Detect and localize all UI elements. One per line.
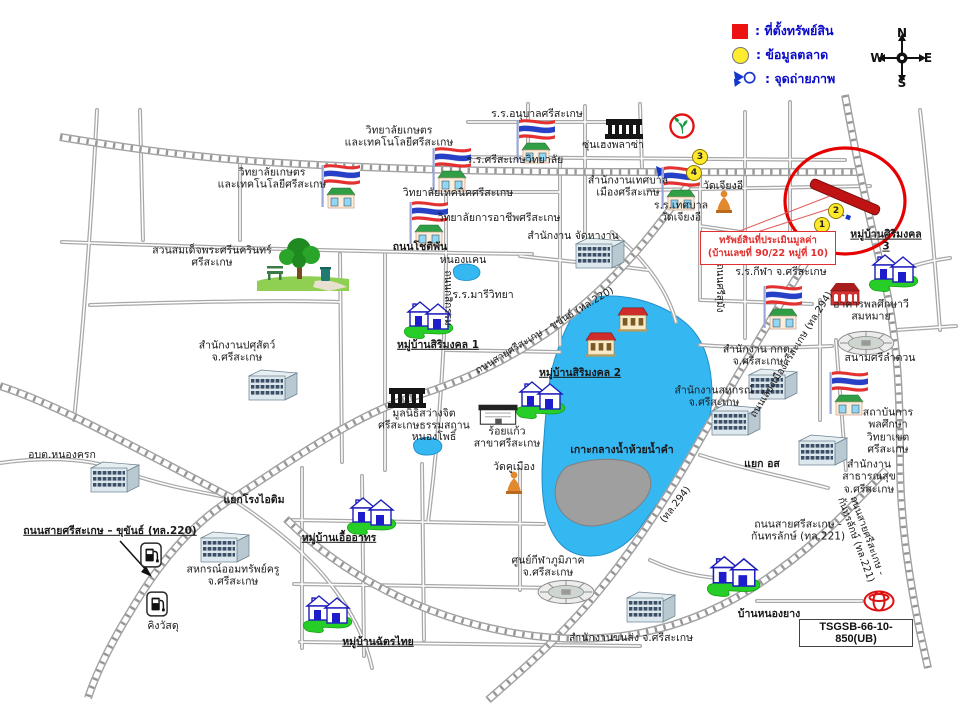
poi-layer: วิทยาลัยเกษตร และเทคโนโลยีศรีสะเกษวิทยาล… (0, 0, 960, 720)
nong-pho-label: หนองโพธิ์ (412, 431, 457, 443)
park-label-text: สวนสมเด็จพระศรีนครินทร์ ศรีสะเกษ (152, 245, 271, 269)
photo-point-icon (732, 70, 758, 89)
king-watsadu-label: คิงวัสดุ (147, 620, 178, 632)
reference-code-box: TSGSB-66-10-850(UB) (799, 619, 913, 647)
chiang-ee-temple-label-text: วัดเจียงอี (703, 180, 743, 192)
transport-office-building (623, 590, 677, 624)
mansion-icon (584, 330, 618, 358)
vocational-college-label: วิทยาลัยการอาชีพศรีสะเกษ (438, 212, 561, 224)
pe-building-label: อาคารพลศึกษาวีสมหมาย (827, 299, 916, 324)
houses-icon (512, 374, 568, 420)
compass-s: S (898, 76, 907, 90)
agri-college-label: วิทยาลัยเกษตร และเทคโนโลยีศรีสะเกษ (218, 167, 327, 192)
hwy220-label: ถนนสายศรีสะเกษ – ขุขันธ์ (ทล.220) (23, 525, 196, 537)
property-callout: ทรัพย์สินที่ประเมินมูลค่า (บ้านเลขที่ 90… (700, 231, 836, 265)
municipality-label: สำนักงานเทศบาล เมืองศรีสะเกษ (588, 175, 668, 200)
gas-icon (146, 591, 168, 617)
regional-sports-label: ศูนย์กีฬาภูมิภาค จ.ศรีสะเกษ (511, 555, 584, 580)
public-health-label: สำนักงานสาธารณสุข จ.ศรีสะเกษ (824, 458, 915, 495)
sunheng-plaza-label: ซุ่นเฮงพลาซ่า (582, 139, 644, 151)
gas-icon (140, 542, 162, 568)
sirimongkol2-label-text: หมู่บ้านสิริมงคล 2 (539, 367, 621, 379)
rongaitim-junction-label: แยกโรงไอติม (223, 494, 284, 506)
pe-institute-label: สถาบันการพลศึกษา วิทยาเขตศรีสะเกษ (852, 406, 924, 456)
agri-college-label-text: วิทยาลัยเกษตร และเทคโนโลยีศรีสะเกษ (218, 167, 327, 191)
darkbldg-icon (387, 387, 427, 409)
gas-station-1 (140, 542, 162, 568)
chatthai-label: หมู่บ้านฉัตรไทย (342, 636, 414, 648)
technic-college-building (430, 145, 474, 193)
shop-icon (477, 401, 519, 427)
houses-icon (865, 247, 921, 293)
sirimongkol3-houses (865, 247, 921, 293)
srisumang-road-label-text: ถนนศรีสุมัง (714, 263, 725, 312)
sirimongkol1-label-text: หมู่บ้านสิริมงคล 1 (397, 339, 479, 351)
vocational-college-label-text: วิทยาลัยการอาชีพศรีสะเกษ (438, 212, 561, 224)
houses-icon (343, 490, 399, 536)
nong-pho-label-text: หนองโพธิ์ (412, 431, 457, 443)
mansion-icon (616, 305, 650, 333)
employment-office-label-text: สำนักงาน จัดหางาน (527, 230, 618, 242)
buddha-icon (714, 189, 734, 215)
livestock-office-building (245, 368, 299, 402)
chotiphan-road-label: ถนนโชติพัน (393, 241, 447, 253)
uea-athon-houses (343, 490, 399, 536)
agri-college-label-2: วิทยาลัยเกษตร และเทคโนโลยีศรีสะเกษ (345, 125, 454, 150)
nongkrok-sao-label-text: อบต.หนองครก (28, 449, 96, 461)
nongyang-label: บ้านหนองยาง (738, 608, 800, 620)
toyota-dealer-logo (863, 590, 895, 612)
callout-line1: ทรัพย์สินที่ประเมินมูลค่า (703, 235, 833, 248)
park-label: สวนสมเด็จพระศรีนครินทร์ ศรีสะเกษ (152, 245, 271, 270)
municipality-label-text: สำนักงานเทศบาล เมืองศรีสะเกษ (588, 175, 668, 199)
sawangjit-label: มูลนิธิสว่างจิต ศรีสะเกษธรรมสถาน (378, 408, 470, 433)
legend-item-property: : ที่ตั้งทรัพย์สิน (732, 22, 835, 40)
buddha-icon (504, 470, 524, 496)
pe-institute-label-text: สถาบันการพลศึกษา วิทยาเขตศรีสะเกษ (863, 406, 913, 455)
regional-sports-label-text: ศูนย์กีฬาภูมิภาค จ.ศรีสะเกษ (511, 555, 584, 579)
sisaket-wittayalai-label-text: ร.ร.ศรีสะเกษวิทยาลัย (467, 154, 564, 166)
roikaew-shop-building (477, 401, 519, 427)
houses-icon (702, 548, 764, 598)
callout-line2: (บ้านเลขที่ 90/22 หมู่ที่ 10) (703, 248, 833, 261)
srisumang-road-label: ถนนศรีสุมัง (713, 263, 725, 312)
island-label: เกาะกลางน้ำห้วยน้ำคำ (570, 444, 673, 456)
teacher-coop-building (197, 530, 251, 564)
uea-athon-label-text: หมู่บ้านเอื้ออาทร (302, 532, 377, 544)
khu-mueang-temple-label-text: วัดคูเมือง (493, 461, 535, 473)
flagschool-icon (430, 145, 474, 193)
kasikam-road-label-text: ถนนกสิกรรม (442, 270, 453, 325)
roikaew-label-text: ร้อยแก้ว สาขาศรีสะเกษ (474, 426, 541, 450)
legend-label: : จุดถ่ายภาพ (765, 69, 835, 89)
sport-school-label-text: ร.ร.กีฬา จ.ศรีสะเกษ (735, 266, 826, 278)
nongkrok-sao-label: อบต.หนองครก (28, 449, 96, 461)
teacher-coop-label-text: สหกรณ์ออมทรัพย์ครู จ.ศรีสะเกษ (187, 564, 280, 588)
map-canvas: วิทยาลัยเกษตร และเทคโนโลยีศรีสะเกษวิทยาล… (0, 0, 960, 720)
houses-icon (299, 588, 355, 634)
nongyang-label-text: บ้านหนองยาง (738, 608, 800, 620)
nongkrok-sao-building (87, 460, 141, 494)
anuban-school-label: ร.ร.อนุบาลศรีสะเกษ (491, 108, 583, 120)
chiang-ee-temple-buddha (714, 189, 734, 215)
sirimongkol3-label-text: หมู่บ้านศิริมงคล 3 (850, 229, 921, 253)
toyota-icon (863, 590, 895, 612)
srilamduan-label: สนามศรีลำดวน (845, 352, 916, 364)
compass-n: N (897, 26, 907, 40)
sisaket-wittayalai-label: ร.ร.ศรีสะเกษวิทยาลัย (467, 154, 564, 166)
transport-office-label-text: สำนักงานขนส่ง จ.ศรีสะเกษ (569, 632, 693, 644)
legend-item-photo-point: : จุดถ่ายภาพ (732, 70, 835, 88)
srilamduan-label-text: สนามศรีลำดวน (845, 352, 916, 364)
or-so-junction-label: แยก อส (744, 458, 780, 470)
employment-office-label: สำนักงาน จัดหางาน (527, 230, 618, 242)
nong-khaen-label: หนองแคน (440, 254, 487, 266)
chatthai-label-text: หมู่บ้านฉัตรไทย (342, 636, 414, 648)
nongyang-houses (702, 548, 764, 598)
office-icon (245, 368, 299, 402)
sirimongkol1-label: หมู่บ้านสิริมงคล 1 (397, 339, 479, 351)
hwy294-small-label-text: (ทล.294) (658, 485, 693, 525)
sirimongkol2-houses (512, 374, 568, 420)
cooperative-office-label-text: สำนักงานสหกรณ์ จ.ศรีสะเกษ (674, 385, 753, 409)
market-data-marker-3: 3 (692, 149, 708, 165)
roikaew-label: ร้อยแก้ว สาขาศรีสะเกษ (474, 426, 541, 451)
kbank-branch (669, 113, 696, 140)
legend-item-market-data: : ข้อมูลตลาด (732, 46, 835, 64)
hwy294-small-label: (ทล.294) (658, 485, 694, 526)
compass-w: W (870, 51, 883, 65)
livestock-office-label: สำนักงานปศุสัตว์ จ.ศรีสะเกษ (199, 340, 276, 365)
tessaban-school-label-text: ร.ร.เทศบาล วัดเจียงอี (654, 200, 708, 224)
sirimongkol3-label: หมู่บ้านศิริมงคล 3 (849, 229, 923, 254)
technic-college-label: วิทยาลัยเทคนิคศรีสะเกษ (403, 187, 513, 199)
maree-wittaya-label-text: ร.ร.มารีวิทยา (452, 289, 513, 301)
khu-mueang-temple-label: วัดคูเมือง (493, 461, 535, 473)
cooperative-office-label: สำนักงานสหกรณ์ จ.ศรีสะเกษ (674, 385, 753, 410)
livestock-office-label-text: สำนักงานปศุสัตว์ จ.ศรีสะเกษ (199, 340, 276, 364)
sirimongkol2-label: หมู่บ้านสิริมงคล 2 (539, 367, 621, 379)
chiang-ee-temple-label: วัดเจียงอี (703, 180, 743, 192)
chotiphan-road-label-text: ถนนโชติพัน (393, 241, 447, 253)
gas-station-2 (146, 591, 168, 617)
sport-school-building (761, 283, 805, 331)
flagschool-icon (761, 283, 805, 331)
hwy221-label-text: ถนนสายศรีสะเกษ - กันทรลักษ์ (ทล.221) (751, 519, 845, 543)
sawangjit-label-text: มูลนิธิสว่างจิต ศรีสะเกษธรรมสถาน (378, 408, 470, 432)
pe-building-label-text: อาคารพลศึกษาวีสมหมาย (833, 299, 909, 323)
kbank-icon (669, 113, 696, 140)
legend: : ที่ตั้งทรัพย์สิน : ข้อมูลตลาด : จุดถ่า… (732, 22, 835, 94)
khu-mueang-temple-buddha (504, 470, 524, 496)
darkbldg-icon (604, 118, 644, 140)
chatthai-houses (299, 588, 355, 634)
compass-e: E (924, 51, 932, 65)
or-so-junction-label-text: แยก อส (744, 458, 780, 470)
sunheng-plaza-building (604, 118, 644, 140)
tessaban-school-label: ร.ร.เทศบาล วัดเจียงอี (654, 200, 708, 225)
nong-khaen-label-text: หนองแคน (440, 254, 487, 266)
legend-label: : ที่ตั้งทรัพย์สิน (755, 21, 834, 41)
maree-wittaya-label: ร.ร.มารีวิทยา (452, 289, 513, 301)
anuban-school-label-text: ร.ร.อนุบาลศรีสะเกษ (491, 108, 583, 120)
island-label-text: เกาะกลางน้ำห้วยน้ำคำ (570, 444, 673, 456)
hwy220-label-text: ถนนสายศรีสะเกษ – ขุขันธ์ (ทล.220) (23, 525, 196, 537)
office-icon (197, 530, 251, 564)
mansion-1 (616, 305, 650, 333)
agri-college-label-2-text: วิทยาลัยเกษตร และเทคโนโลยีศรีสะเกษ (345, 125, 454, 149)
hwy221-label: ถนนสายศรีสะเกษ - กันทรลักษ์ (ทล.221) (751, 519, 845, 544)
market-data-swatch-icon (732, 47, 749, 64)
office-icon (623, 590, 677, 624)
rongaitim-junction-label-text: แยกโรงไอติม (223, 494, 284, 506)
office-icon (87, 460, 141, 494)
technic-college-label-text: วิทยาลัยเทคนิคศรีสะเกษ (403, 187, 513, 199)
transport-office-label: สำนักงานขนส่ง จ.ศรีสะเกษ (569, 632, 693, 644)
market-data-marker-2: 2 (828, 203, 844, 219)
king-watsadu-label-text: คิงวัสดุ (147, 620, 178, 632)
sawangjit-foundation-building (387, 387, 427, 409)
sunheng-plaza-label-text: ซุ่นเฮงพลาซ่า (582, 139, 644, 151)
uea-athon-label: หมู่บ้านเอื้ออาทร (302, 532, 377, 544)
property-swatch-icon (732, 24, 748, 39)
legend-label: : ข้อมูลตลาด (756, 45, 828, 65)
kasikam-road-label: ถนนกสิกรรม (441, 270, 453, 325)
stadium-icon (535, 579, 597, 605)
sport-school-label: ร.ร.กีฬา จ.ศรีสะเกษ (735, 266, 826, 278)
teacher-coop-label: สหกรณ์ออมทรัพย์ครู จ.ศรีสะเกษ (187, 564, 280, 589)
market-data-marker-4: 4 (686, 165, 702, 181)
regional-sports-stadium (535, 579, 597, 605)
mansion-2 (584, 330, 618, 358)
